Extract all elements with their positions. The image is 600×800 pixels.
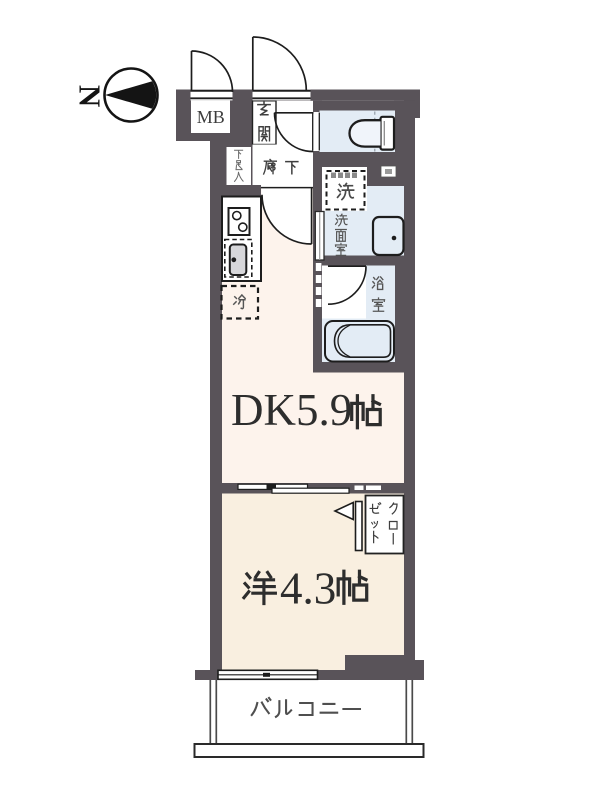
svg-text:MB: MB <box>197 107 225 127</box>
svg-text:N: N <box>73 85 108 107</box>
svg-text:DK5.9: DK5.9 <box>231 385 352 435</box>
svg-text:4.3: 4.3 <box>280 564 336 614</box>
